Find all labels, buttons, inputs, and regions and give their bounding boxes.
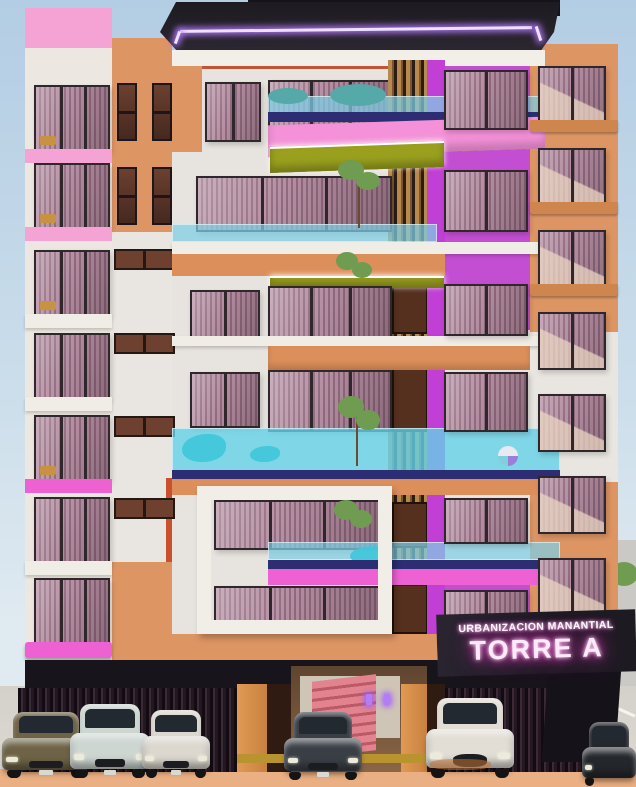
car-headlight (348, 758, 358, 763)
window (538, 148, 606, 206)
pink-parapet (25, 8, 112, 48)
car-windshield (299, 717, 347, 734)
window (34, 578, 110, 644)
window-ledge (530, 284, 618, 296)
car-suv-white (426, 698, 514, 776)
car-headlight (498, 753, 509, 759)
transom-window (114, 333, 175, 354)
car-sedan-black-partial (582, 722, 636, 784)
building-sign: URBANIZACION MANANTIAL TORRE A (436, 609, 636, 677)
balcony-object (40, 301, 56, 310)
car-grille (308, 763, 338, 770)
balcony-door (392, 584, 428, 634)
slab-band (172, 336, 545, 346)
window (444, 372, 528, 432)
car-windshield (85, 709, 135, 728)
car-plate (104, 770, 117, 775)
car-grille (95, 759, 125, 767)
building-render: URBANIZACION MANANTIAL TORRE A (0, 0, 636, 787)
window (538, 312, 606, 370)
balcony-door (392, 368, 428, 432)
car-plate (317, 772, 329, 777)
window (34, 333, 110, 399)
car-windshield (19, 716, 74, 733)
car-grille (29, 761, 62, 768)
transom-window (114, 249, 175, 270)
window (190, 372, 260, 428)
slab-band (25, 561, 112, 575)
car-headlight (198, 756, 207, 761)
window (444, 284, 528, 336)
window (444, 170, 528, 232)
window (268, 286, 392, 340)
car-headlight (430, 753, 441, 759)
beach-ball (498, 446, 518, 466)
window (538, 66, 606, 124)
mid-column-orange-bottom (112, 562, 172, 666)
car-headlight (145, 756, 154, 761)
balcony-band-pink (25, 227, 112, 241)
fascia (172, 50, 545, 66)
window (34, 497, 110, 563)
car-wheel (75, 770, 88, 779)
window (444, 70, 528, 130)
balcony-band-hotpink (25, 479, 112, 493)
balcony-object (40, 466, 56, 475)
window (444, 498, 528, 544)
plant (268, 88, 308, 104)
window-ledge (530, 120, 618, 132)
car-body (582, 747, 636, 778)
small-window (152, 83, 172, 141)
car-sedan-silver (70, 704, 150, 776)
balcony-base (172, 470, 560, 479)
plant (330, 84, 386, 106)
car-headlight (585, 765, 592, 770)
small-window (117, 167, 137, 225)
balcony-band-hotpink (25, 642, 112, 658)
orange-pier (172, 66, 202, 152)
white-frame (197, 486, 392, 634)
slab-band (25, 314, 112, 328)
slab-band (25, 397, 112, 411)
car-headlight (6, 757, 17, 762)
neon-lobby-light (384, 694, 390, 705)
plant (356, 410, 380, 430)
orange-balcony-band (268, 346, 530, 370)
glass-railing (172, 224, 437, 242)
car-headlight (288, 758, 298, 763)
window-ledge (530, 202, 618, 214)
car-plate (171, 770, 182, 775)
car-headlight (74, 754, 84, 760)
plant (352, 262, 372, 278)
balcony-door (392, 284, 428, 334)
window (538, 394, 606, 452)
window (538, 230, 606, 288)
car-sedan-white (142, 710, 210, 776)
window (538, 476, 606, 534)
sign-line-2: TORRE A (469, 632, 604, 667)
window (190, 290, 260, 340)
small-window (152, 167, 172, 225)
car-wheel (585, 778, 594, 785)
orange-balcony-band (172, 254, 445, 276)
balcony-band-pink (25, 149, 112, 163)
small-window (117, 83, 137, 141)
window (205, 82, 261, 142)
neon-lobby-light (366, 694, 372, 705)
balcony-object (40, 214, 56, 223)
plant (356, 172, 380, 190)
balcony-object (40, 136, 56, 145)
transom-window (114, 498, 175, 519)
car-plate (39, 770, 53, 774)
car-windshield (155, 715, 197, 732)
car-windshield (443, 703, 498, 723)
car-windshield (592, 726, 625, 742)
car-sedan-dark (284, 712, 362, 778)
slab-band (172, 242, 545, 254)
car-grille (163, 761, 189, 768)
window (538, 558, 606, 616)
transom-window (114, 416, 175, 437)
